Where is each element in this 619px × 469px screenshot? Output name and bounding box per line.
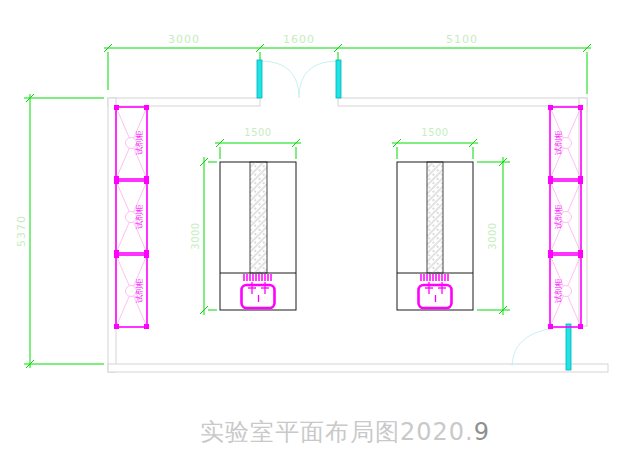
wall-top-left bbox=[108, 98, 260, 106]
reagent-cabinet bbox=[548, 179, 583, 255]
lab-bench-right bbox=[397, 162, 473, 310]
drain-grill-icon bbox=[420, 274, 450, 281]
door-leaf-icon bbox=[257, 60, 262, 98]
reagent-cabinet bbox=[114, 179, 149, 255]
wall-top-right bbox=[338, 98, 587, 106]
wall-bottom bbox=[108, 364, 608, 372]
reagent-cabinet bbox=[548, 105, 583, 181]
bench-service-strip bbox=[250, 162, 267, 273]
door-swing-arc bbox=[512, 327, 570, 366]
bench-service-strip bbox=[427, 162, 443, 273]
wall-left bbox=[108, 98, 116, 372]
room-walls bbox=[108, 98, 608, 372]
drain-grill-icon bbox=[243, 274, 273, 281]
side-door bbox=[512, 324, 571, 370]
lab-bench-left bbox=[220, 162, 296, 310]
double-entry-door bbox=[257, 60, 341, 98]
reagent-cabinet bbox=[548, 253, 583, 329]
floorplan-canvas: 3000 1600 5100 5370 1500 3000 1500 3000 … bbox=[0, 0, 619, 469]
door-leaf-icon bbox=[336, 60, 341, 98]
reagent-cabinet bbox=[114, 253, 149, 329]
door-swing-arc bbox=[260, 61, 299, 98]
door-leaf-icon bbox=[566, 324, 571, 370]
reagent-cabinet bbox=[114, 105, 149, 181]
cabinet-column-right bbox=[548, 105, 583, 329]
cabinet-column-left bbox=[114, 105, 149, 329]
floorplan-linework bbox=[0, 0, 619, 469]
door-swing-arc bbox=[299, 61, 338, 98]
